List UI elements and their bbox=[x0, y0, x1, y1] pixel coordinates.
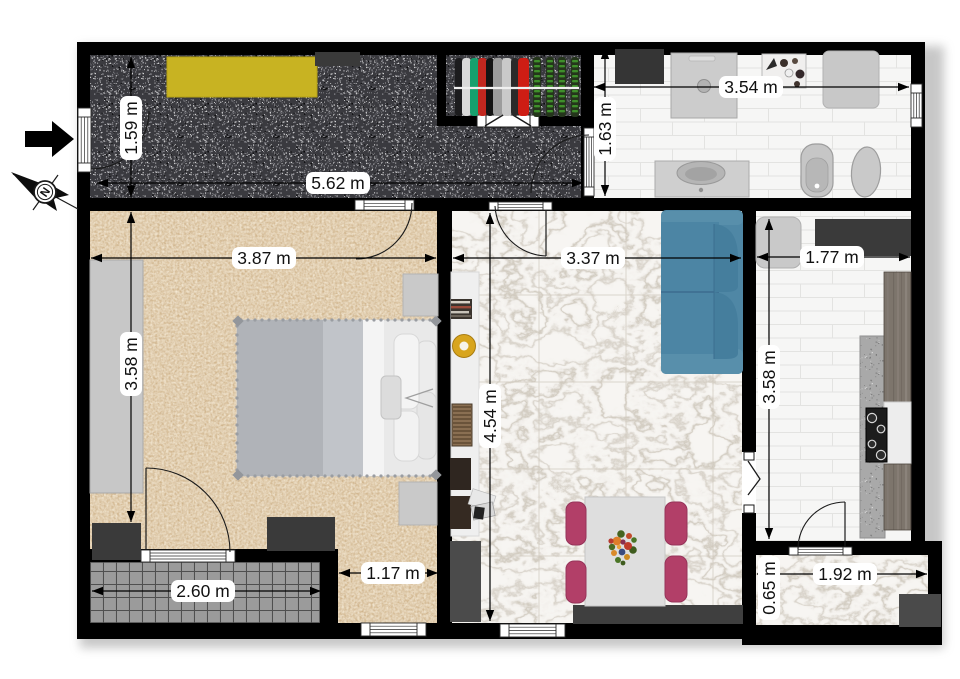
svg-text:3.87 m: 3.87 m bbox=[237, 248, 291, 268]
svg-text:1.59 m: 1.59 m bbox=[121, 101, 141, 155]
svg-text:3.58 m: 3.58 m bbox=[759, 350, 779, 404]
svg-text:3.37 m: 3.37 m bbox=[566, 248, 620, 268]
svg-text:4.54 m: 4.54 m bbox=[480, 389, 500, 443]
svg-text:0.65 m: 0.65 m bbox=[759, 561, 779, 615]
svg-text:2.60 m: 2.60 m bbox=[176, 581, 230, 601]
svg-text:1.63 m: 1.63 m bbox=[595, 102, 615, 156]
svg-text:3.54 m: 3.54 m bbox=[724, 77, 778, 97]
svg-text:1.17 m: 1.17 m bbox=[366, 563, 420, 583]
svg-text:1.92 m: 1.92 m bbox=[818, 564, 872, 584]
svg-text:1.77 m: 1.77 m bbox=[805, 247, 859, 267]
svg-text:5.62 m: 5.62 m bbox=[311, 173, 365, 193]
svg-text:3.58 m: 3.58 m bbox=[121, 337, 141, 391]
